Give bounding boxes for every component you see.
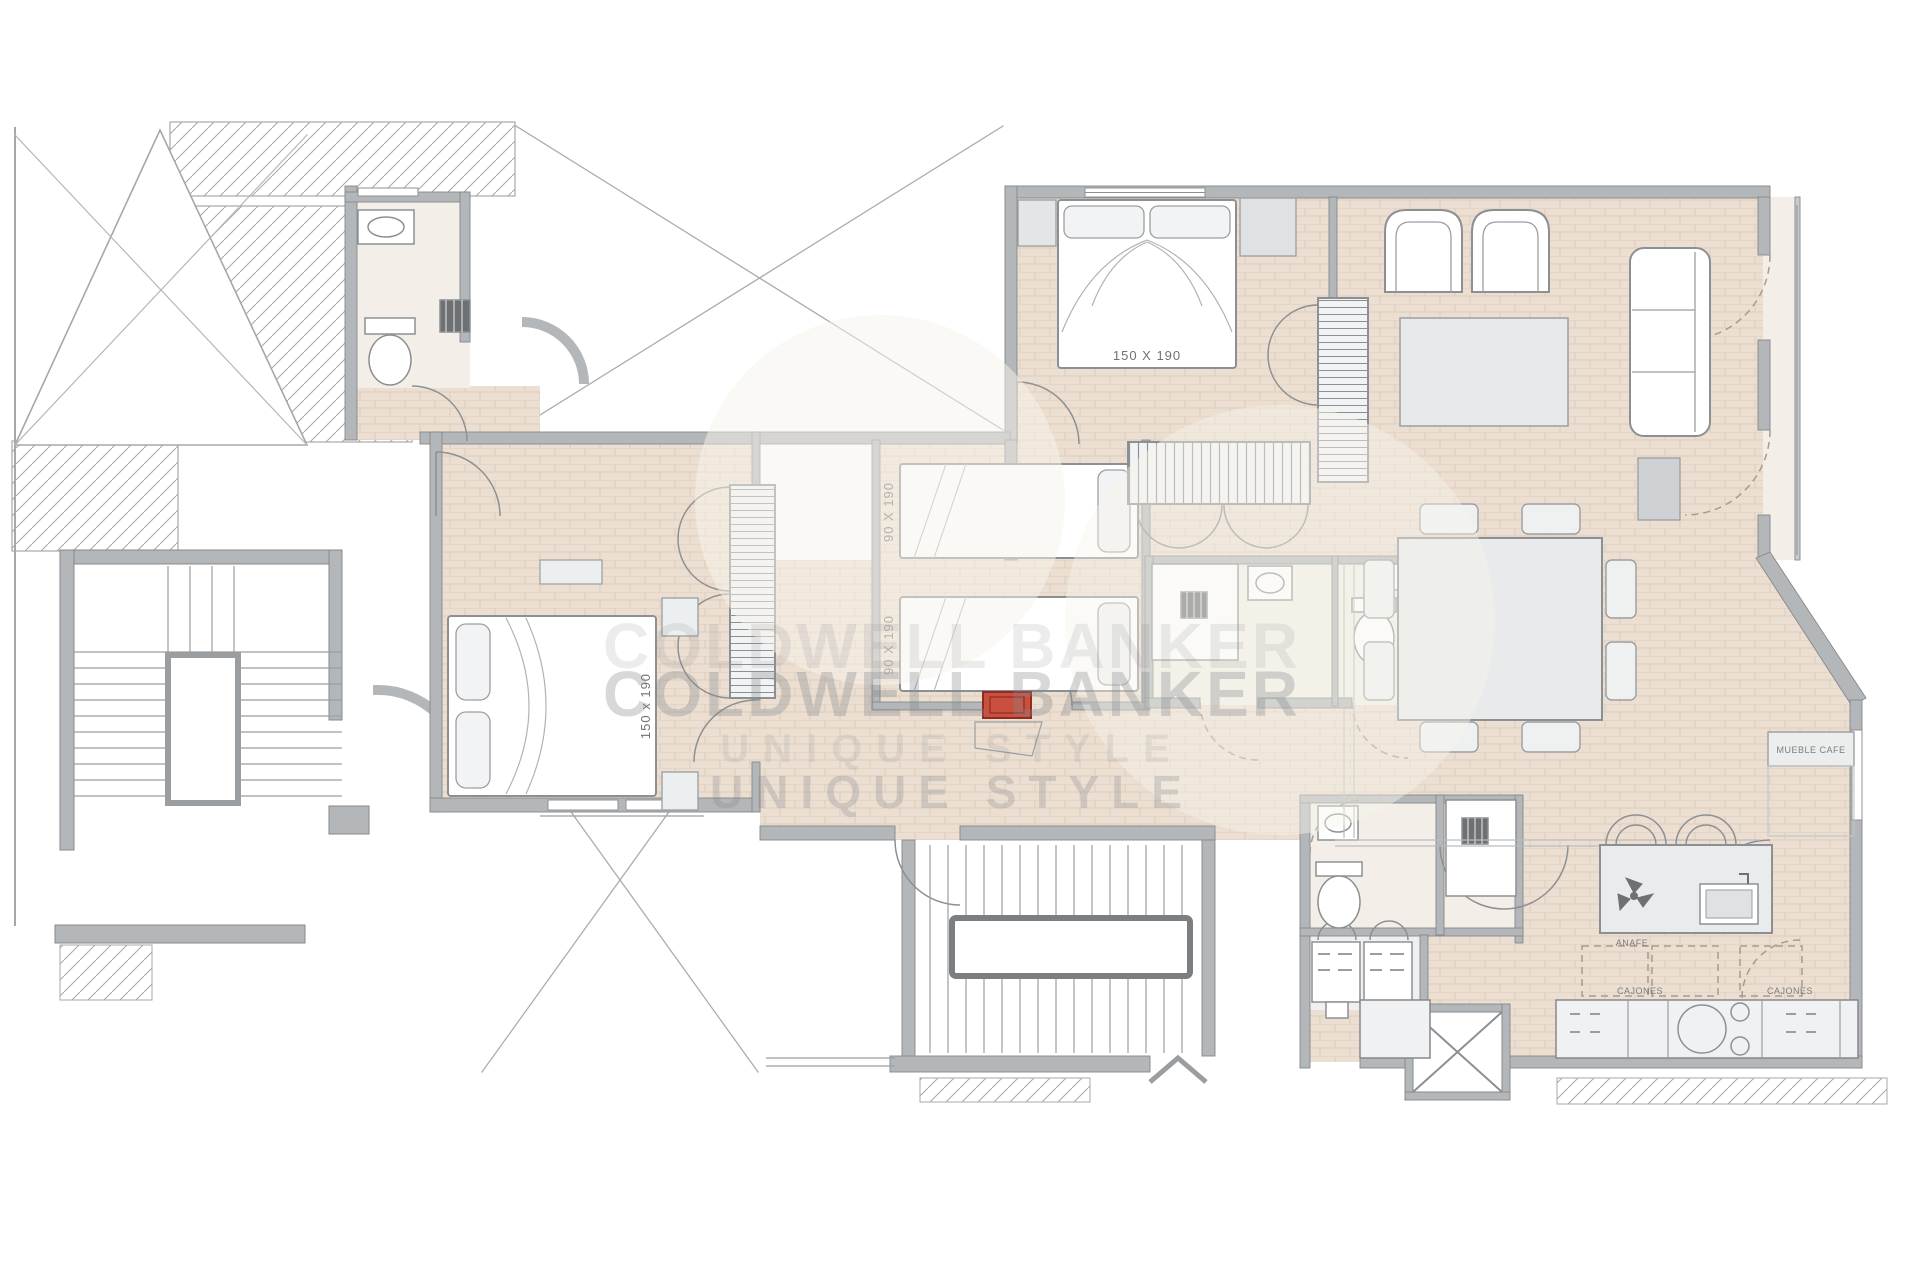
left-bed-pillow-1	[456, 624, 490, 700]
appliance-detail	[1326, 1002, 1348, 1018]
left-bed-pillow-2	[456, 712, 490, 788]
master-cabinet-right	[1240, 198, 1296, 256]
left-nightstand-2	[662, 772, 698, 810]
appliance-1	[1312, 942, 1360, 1002]
stair-direction-chevron	[1150, 1058, 1206, 1082]
kitchen-drawers-left-label: CAJONES	[1617, 986, 1663, 996]
bathTL-shower-drain	[440, 300, 470, 332]
bathTL-sink	[358, 210, 414, 244]
wall-bath2-south	[1300, 928, 1523, 936]
kitchen-counter	[1556, 1000, 1858, 1058]
bathTL-wc-tank	[365, 318, 415, 334]
wall-elevator-s	[1405, 1092, 1510, 1100]
floor-plan-svg: 150 X 190 150 x 190 90 X 190 90 X 190 CA…	[0, 0, 1920, 1263]
communal-stair-left	[60, 550, 369, 850]
bathTL-wc-bowl	[369, 335, 411, 385]
central-stair	[930, 845, 1206, 1082]
wall-corridor-south-b	[960, 826, 1215, 840]
coffee-table	[1400, 318, 1568, 426]
watermark-line1: COLDWELL BANKER	[603, 658, 1301, 730]
watermark-line2: UNIQUE STYLE	[710, 766, 1194, 818]
master-pillow-right	[1150, 206, 1230, 238]
watermark-line2-ghost: UNIQUE STYLE	[720, 727, 1184, 771]
wall-elevator-e	[1502, 1004, 1510, 1100]
stair-landing	[952, 918, 1190, 976]
lobby-window-rails	[766, 1058, 895, 1066]
bath2-wc-bowl	[1318, 876, 1360, 928]
wall-living-east-b	[1758, 340, 1770, 430]
stair-newel-wall	[168, 655, 238, 803]
exterior-hatch-under-stairs	[920, 1078, 1090, 1102]
kitchen-drawers-right-label: CAJONES	[1767, 986, 1813, 996]
roof-hatch-block-mid-left	[12, 441, 178, 551]
coffee-cabinet-label: MUEBLE CAFE	[1776, 745, 1845, 755]
kitchen-cabinet-left	[1360, 1000, 1430, 1058]
curved-vestibule-wall	[522, 322, 584, 384]
bath2-shower	[1446, 800, 1516, 896]
master-pillow-left	[1064, 206, 1144, 238]
floor-plan-page: 150 X 190 150 x 190 90 X 190 90 X 190 CA…	[0, 0, 1920, 1263]
sofa	[1630, 248, 1710, 436]
appliance-2	[1364, 942, 1412, 1002]
master-bed-size-label: 150 X 190	[1113, 348, 1181, 363]
wall-corridor-south-a	[760, 826, 895, 840]
exterior-hatch-under-kitchen	[1557, 1078, 1887, 1104]
roof-hatch-bottom-left	[60, 945, 152, 1000]
kitchen-hob-label: ANAFE	[1616, 938, 1649, 948]
left-dresser	[540, 560, 602, 584]
exterior-wall-bottom-left	[55, 925, 305, 943]
wall-stairC-east	[1202, 840, 1215, 1056]
wall-stairC-south	[890, 1056, 1150, 1072]
wall-living-east-a	[1758, 197, 1770, 255]
side-table	[1638, 458, 1680, 520]
bath2-wc-tank	[1316, 862, 1362, 876]
roof-hatch-band-top-left	[170, 122, 515, 196]
master-nightstand-left	[1018, 200, 1056, 246]
wall-bathTL-west	[345, 186, 357, 440]
